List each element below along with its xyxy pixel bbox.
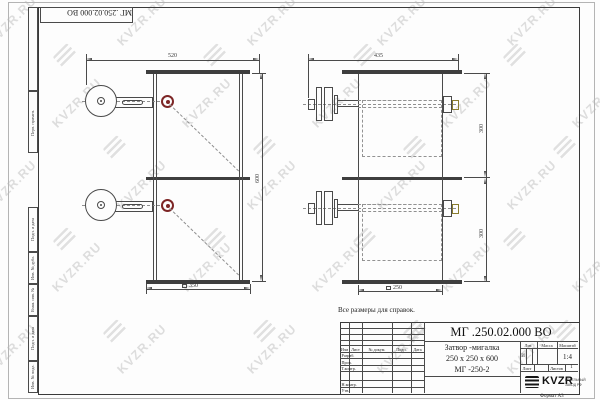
margin-label: Взам. инв. №: [30, 288, 35, 312]
flange-top: [146, 70, 250, 74]
bearing-bolt-icon: [452, 100, 459, 110]
dim-section1-side: 300: [479, 124, 485, 133]
tb-line: [411, 322, 412, 393]
margin-box: [28, 7, 38, 91]
pivot-bolt-center: [166, 100, 170, 104]
arrow-icon: [86, 58, 92, 60]
tb-line: [392, 322, 393, 393]
ext-line: [259, 54, 260, 73]
flange-middle: [342, 177, 462, 181]
masshtab-header: Масштаб: [557, 343, 578, 348]
dim-line: [86, 60, 259, 61]
tb-line: [526, 348, 527, 364]
flange-middle: [146, 177, 250, 181]
col-header: Подп.: [392, 347, 411, 352]
handle-plate: [316, 87, 322, 121]
shaft-nut: [308, 203, 315, 214]
handle-plate: [324, 191, 333, 225]
lever-slot: [122, 204, 143, 209]
shaft-bracket: [443, 200, 452, 217]
flange-bottom: [146, 280, 250, 284]
masshtab-value: 1:4: [557, 353, 578, 361]
dim-bottom-front: 350: [189, 283, 198, 289]
duct-wall: [239, 74, 240, 281]
tb-line: [532, 348, 533, 364]
row-label: Т.контр.: [342, 366, 356, 371]
arrow-icon: [260, 73, 262, 79]
square-section-icon: [386, 286, 391, 291]
ext-line: [458, 54, 459, 70]
col-header: № докум.: [362, 347, 392, 352]
dim-height-front: 600: [255, 174, 261, 183]
margin-label: Перв. примен.: [30, 110, 35, 136]
row-label: Утв.: [342, 388, 350, 393]
arrow-icon: [484, 276, 486, 282]
col-header: Изм: [340, 347, 349, 352]
tb-line: [520, 371, 578, 372]
tb-line: [362, 322, 363, 393]
shaft: [338, 204, 358, 211]
arrow-icon: [260, 275, 262, 281]
row-label: Разраб.: [342, 353, 355, 358]
part-name: Затвор -мигалка: [424, 343, 520, 352]
arrow-icon: [436, 289, 442, 291]
pivot-bolt-center: [166, 204, 170, 208]
list-header: Лист: [520, 366, 534, 371]
designation: МГ .250.02.000 ВО: [424, 325, 578, 340]
dim-line: [146, 289, 250, 290]
dim-width-side: 435: [374, 53, 383, 59]
ext-line: [442, 285, 443, 295]
part-model: МГ -250-2: [424, 365, 520, 374]
bearing-bolt-icon: [452, 204, 459, 214]
dim-bottom-side: 250: [393, 285, 402, 291]
dim-line: [486, 178, 487, 282]
shaft-bracket: [443, 96, 452, 113]
row-label: Пров.: [342, 360, 352, 365]
designation-stamp-box: МГ .250.02.000 ВО: [40, 7, 133, 23]
tb-line: [424, 376, 520, 377]
company-sub1: КОТЕЛЬНЫЙ: [565, 378, 586, 382]
flange-top: [342, 70, 462, 74]
row-label: Н.контр.: [342, 382, 357, 387]
col-header: Дата: [411, 347, 424, 352]
flange-bottom: [342, 280, 462, 284]
col-header: Лист: [349, 347, 362, 352]
arrow-icon: [308, 58, 314, 60]
dim-line: [358, 291, 442, 292]
duct-wall: [156, 74, 157, 281]
designation-stamp: МГ .250.02.000 ВО: [41, 8, 132, 17]
drawing-sheet: KVZR.RUKVZR.RUKVZR.RUKVZR.RUKVZR.RUKVZR.…: [0, 0, 600, 400]
margin-label: Подп. и дата: [30, 327, 35, 350]
listov-value: 1: [565, 365, 578, 370]
reference-note: Все размеры для справок.: [338, 306, 415, 314]
margin-label: Подп. и дата: [30, 218, 35, 241]
arrow-icon: [484, 73, 486, 79]
tb-line: [534, 364, 535, 371]
arrow-icon: [452, 58, 458, 60]
handle-plate: [324, 87, 333, 121]
dim-line: [262, 73, 263, 281]
margin-label: Инв. № дубл.: [30, 256, 35, 280]
handle-plate: [316, 191, 322, 225]
lit-value: И: [520, 354, 526, 359]
dim-section2-side: 300: [479, 229, 485, 238]
blade-hidden-rect: [362, 204, 442, 261]
arrow-icon: [358, 289, 364, 291]
lever-slot: [122, 100, 143, 105]
kvzr-logo-icon: [525, 376, 539, 388]
dim-width-front: 520: [168, 53, 177, 59]
arrow-icon: [146, 287, 152, 289]
massa-header: Масса: [537, 343, 557, 348]
part-size: 250 х 250 х 600: [424, 354, 520, 363]
dim-line: [486, 73, 487, 178]
square-section-icon: [182, 284, 187, 289]
arrow-icon: [244, 287, 250, 289]
dim-line: [308, 60, 458, 61]
company-sub2: ЗАВОД РФ: [565, 383, 582, 387]
arrow-icon: [253, 58, 259, 60]
ext-line: [252, 281, 266, 282]
arrow-icon: [484, 171, 486, 177]
blade-hidden-rect: [362, 100, 442, 157]
duct-wall: [242, 74, 243, 281]
shaft-nut: [308, 99, 315, 110]
tb-line: [520, 348, 578, 349]
shaft: [338, 100, 358, 107]
listov-header: Листов: [548, 366, 565, 371]
ext-line: [250, 284, 251, 294]
arrow-icon: [484, 178, 486, 184]
format-label: Формат А3: [540, 394, 564, 399]
lit-header: Лит.: [520, 343, 537, 348]
ext-line: [252, 73, 266, 74]
margin-label: Инв. № подл.: [30, 365, 35, 389]
